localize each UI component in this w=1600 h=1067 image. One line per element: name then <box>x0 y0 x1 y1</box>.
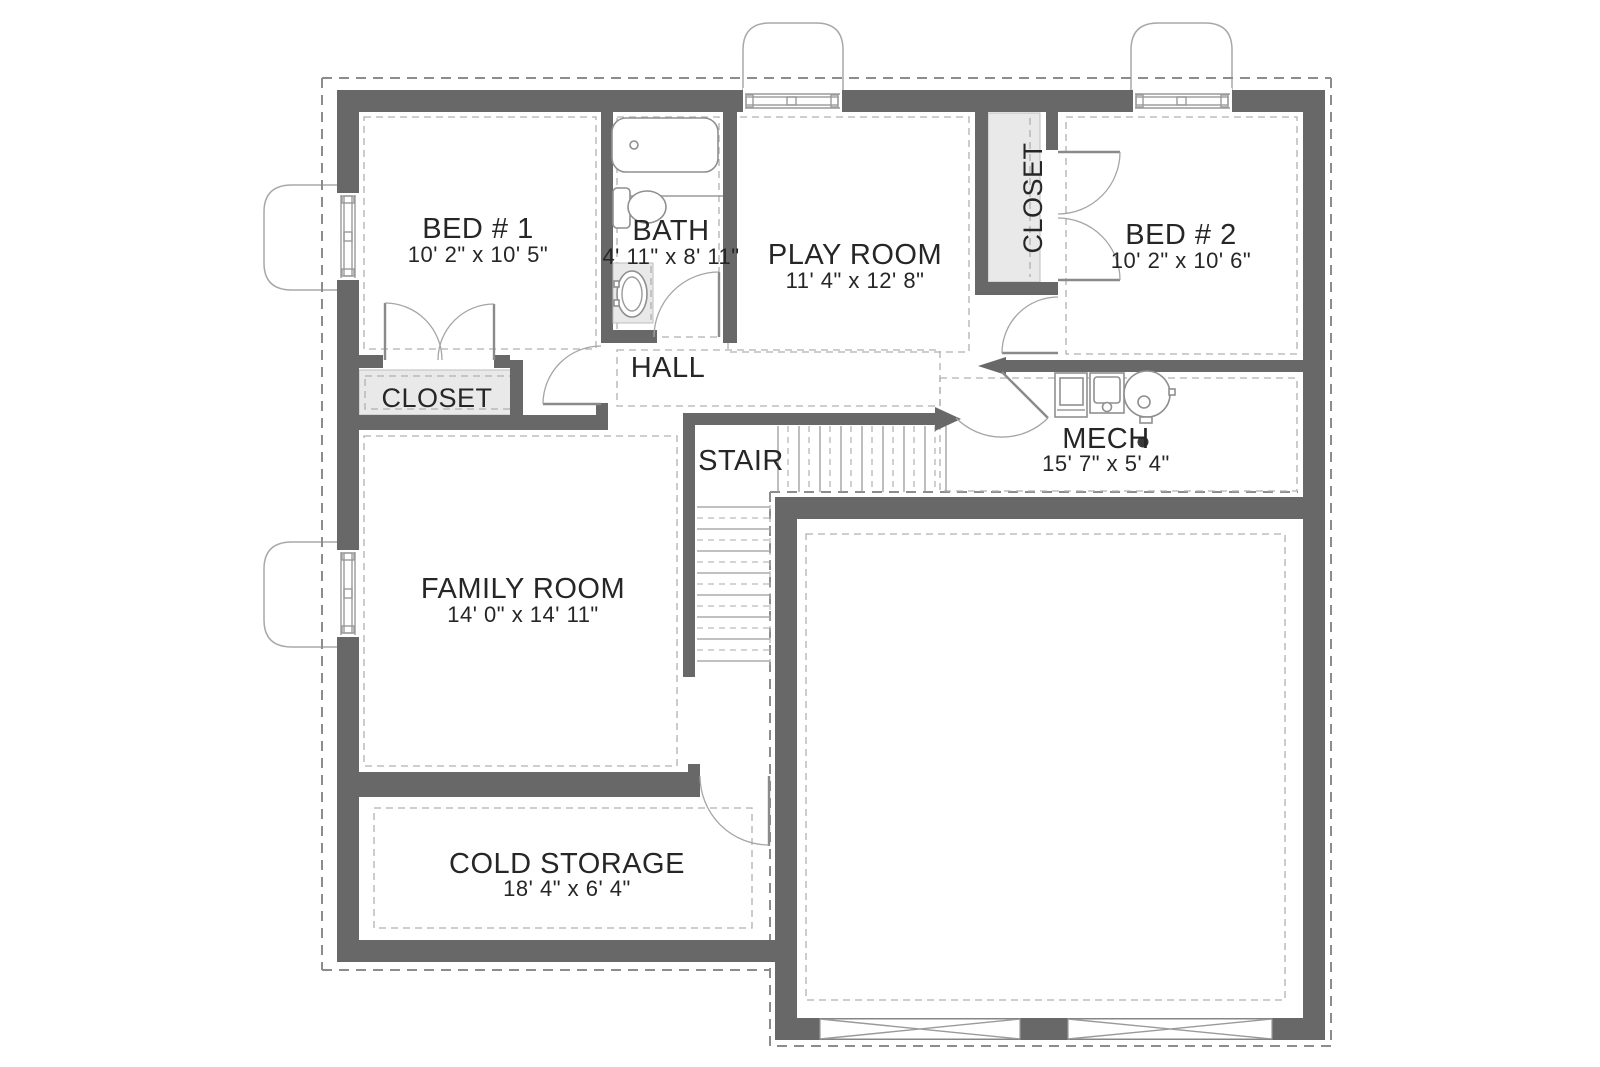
wall-bed2-closet-left <box>975 112 988 295</box>
window-left-family <box>335 550 361 637</box>
floor-plan-drawing: BED # 1 10' 2" x 10' 5" BATH 4' 11" x 8'… <box>0 0 1600 1067</box>
window-wells <box>264 23 1232 647</box>
family-dims: 14' 0" x 14' 11" <box>447 602 598 627</box>
bath-door <box>654 272 719 337</box>
wall-cold-door-jamb <box>688 764 700 774</box>
window-well-top-right <box>1131 23 1232 91</box>
bathtub-fixture <box>612 118 723 196</box>
wall-garage-left <box>775 497 797 1040</box>
playroom-dims: 11' 4" x 12' 8" <box>786 268 925 293</box>
wall-bath-bottom <box>601 330 657 343</box>
hall-label: HALL <box>631 352 706 384</box>
window-top-bed2 <box>1133 88 1232 114</box>
floor-plan-page: BED # 1 10' 2" x 10' 5" BATH 4' 11" x 8'… <box>0 0 1600 1067</box>
window-well-left-bed1 <box>264 185 338 290</box>
bath-dims: 4' 11" x 8' 11" <box>602 244 739 269</box>
bed1-dims: 10' 2" x 10' 5" <box>408 242 548 267</box>
wall-cold-bottom <box>337 940 775 962</box>
window-well-left-family <box>264 542 338 647</box>
cold-storage-door <box>700 776 769 846</box>
sink-vanity-fixture <box>613 263 653 323</box>
bath-label: BATH <box>632 215 709 247</box>
bed2-dims: 10' 2" x 10' 6" <box>1111 248 1251 273</box>
wall-bed1-south-b <box>494 355 510 368</box>
braced-opening-left <box>820 1019 1020 1039</box>
stair-upper-run <box>778 426 946 492</box>
bed2-label: BED # 2 <box>1125 219 1237 251</box>
bed1-label: BED # 1 <box>422 213 534 245</box>
wall-bed2-closet-bottom <box>975 282 1058 295</box>
wall-stair-north <box>683 413 935 425</box>
wall-bed1-south-a <box>359 355 383 368</box>
furnace-fixture <box>1090 373 1124 413</box>
braced-opening-right <box>1068 1019 1272 1039</box>
wall-family-south <box>337 772 700 797</box>
window-left-bed1 <box>335 193 361 280</box>
playroom-label: PLAY ROOM <box>768 239 942 271</box>
family-label: FAMILY ROOM <box>421 573 625 605</box>
wall-garage-top <box>775 497 1325 519</box>
wall-right-exterior <box>1303 90 1325 1040</box>
bed2-closet-label: CLOSET <box>1018 142 1048 253</box>
wall-mech-north <box>1005 360 1303 372</box>
mech-door <box>956 372 1048 437</box>
bed1-entry-door <box>543 346 601 404</box>
bed1-closet-label: CLOSET <box>381 383 492 413</box>
bed1-closet-double-door <box>385 303 494 360</box>
wall-bed1-closet-bottom <box>337 415 608 430</box>
wall-stair-west <box>683 413 695 677</box>
mech-dims: 15' 7" x 5' 4" <box>1042 451 1170 476</box>
bed2-entry-door <box>1002 297 1058 353</box>
window-well-top-left <box>743 23 843 91</box>
mech-appliance-fixture <box>1055 373 1087 417</box>
cold-dims: 18' 4" x 6' 4" <box>503 876 631 901</box>
stair-lower-run <box>697 505 770 665</box>
water-heater-fixture <box>1124 371 1175 423</box>
wall-bath-right <box>723 112 737 343</box>
window-top-playroom <box>743 88 842 114</box>
stair-label: STAIR <box>698 445 784 477</box>
